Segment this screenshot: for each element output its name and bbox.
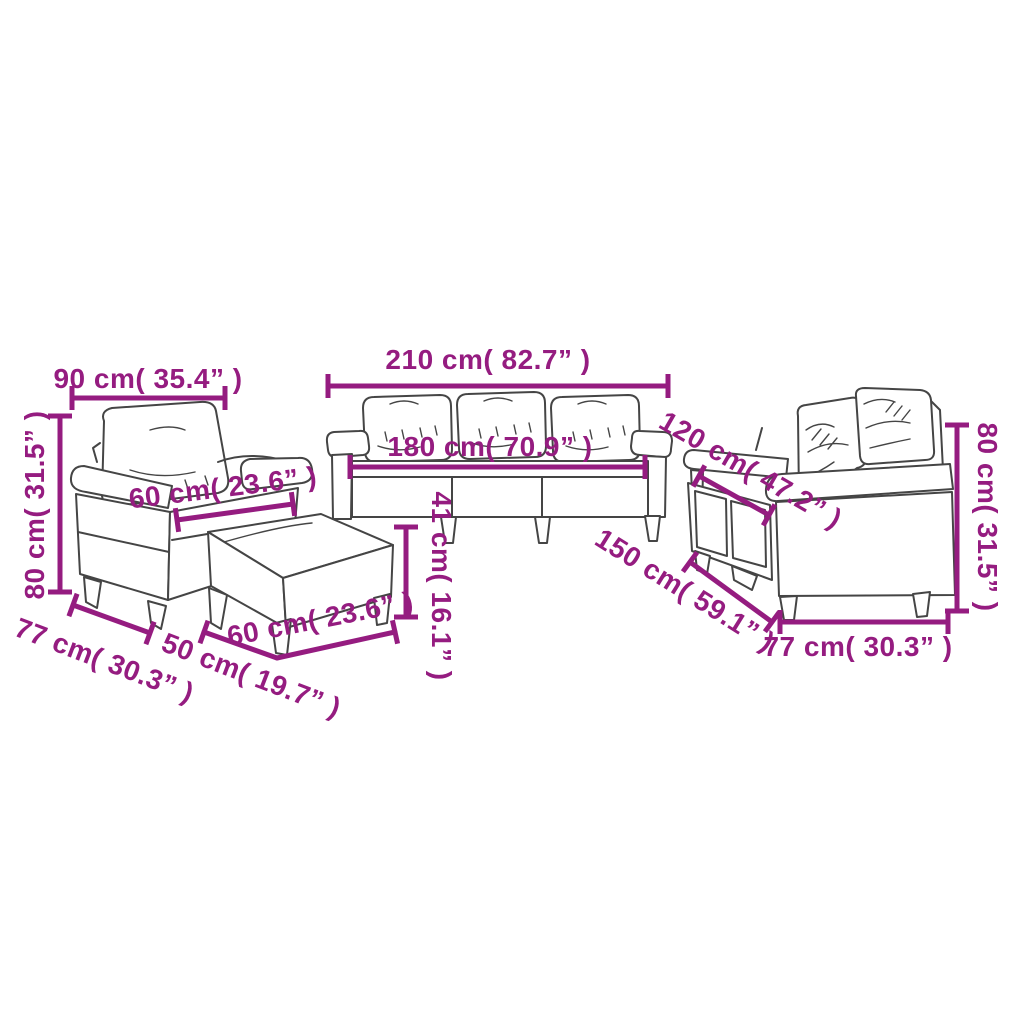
armchair-height-dimension-label: 80 cm( 31.5” ) — [19, 410, 50, 599]
armchair-leg — [148, 601, 166, 629]
sofa3-width-dimension-label: 210 cm( 82.7” ) — [385, 344, 590, 375]
sofa2-side-panel — [695, 491, 727, 556]
armchair-depth-dimension-line — [73, 605, 150, 633]
armchair-leg — [84, 577, 101, 608]
sofa3-arm-post-left — [332, 454, 352, 519]
sofa2-depth-dimension-label: 77 cm( 30.3” ) — [763, 631, 952, 662]
armchair-back-frame-edge — [93, 443, 100, 462]
sofa2-height-dimension-label: 80 cm( 31.5” ) — [972, 422, 1003, 611]
sofa-set-dimension-diagram: 90 cm( 35.4” ) 80 cm( 31.5” ) 60 cm( 23.… — [0, 0, 1024, 1024]
sofa2-back-edge — [756, 428, 762, 450]
armchair-width-dimension-label: 90 cm( 35.4” ) — [53, 363, 242, 394]
sofa3-seat-width-dimension-label: 180 cm( 70.9” ) — [387, 431, 592, 462]
sofa3-armrest-left — [327, 431, 369, 457]
sofa2-leg — [913, 592, 930, 617]
sofa3-leg — [645, 516, 660, 541]
sofa2-back-cushion — [856, 388, 934, 464]
ottoman-height-dimension-label: 41 cm( 16.1” ) — [426, 491, 457, 680]
sofa3-leg — [535, 517, 550, 543]
sofa2-leg — [780, 596, 797, 620]
